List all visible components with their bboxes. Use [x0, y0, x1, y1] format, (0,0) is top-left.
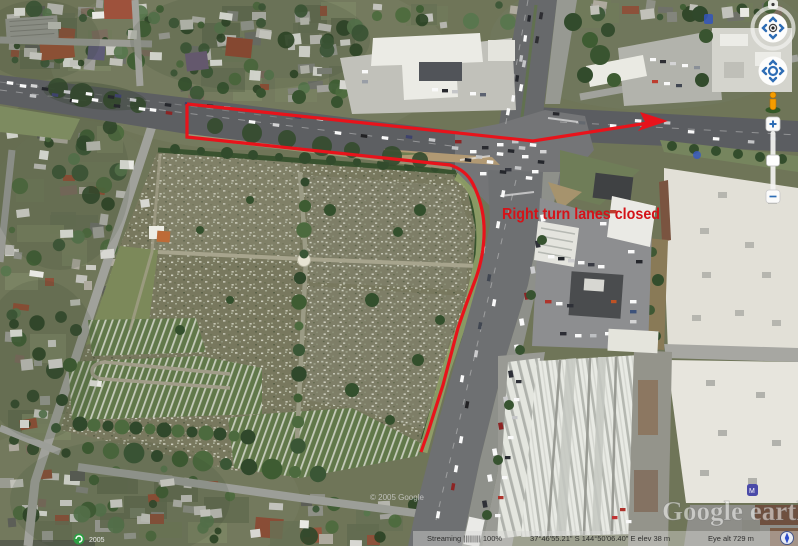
svg-text:Right turn lanes closed: Right turn lanes closed: [502, 206, 660, 223]
svg-text:© 2005 Google: © 2005 Google: [370, 493, 424, 502]
svg-text:Eye alt 729 m: Eye alt 729 m: [708, 534, 754, 543]
svg-text:Streaming ||||||||| 100%: Streaming ||||||||| 100%: [427, 534, 502, 543]
svg-text:2005: 2005: [89, 537, 105, 544]
svg-text:37°46'55.21" S 144°50'06.40": 37°46'55.21" S 144°50'06.40" E elev 38 m: [530, 534, 670, 543]
svg-text:Google earth: Google earth: [662, 496, 798, 526]
svg-text:M: M: [749, 488, 755, 495]
